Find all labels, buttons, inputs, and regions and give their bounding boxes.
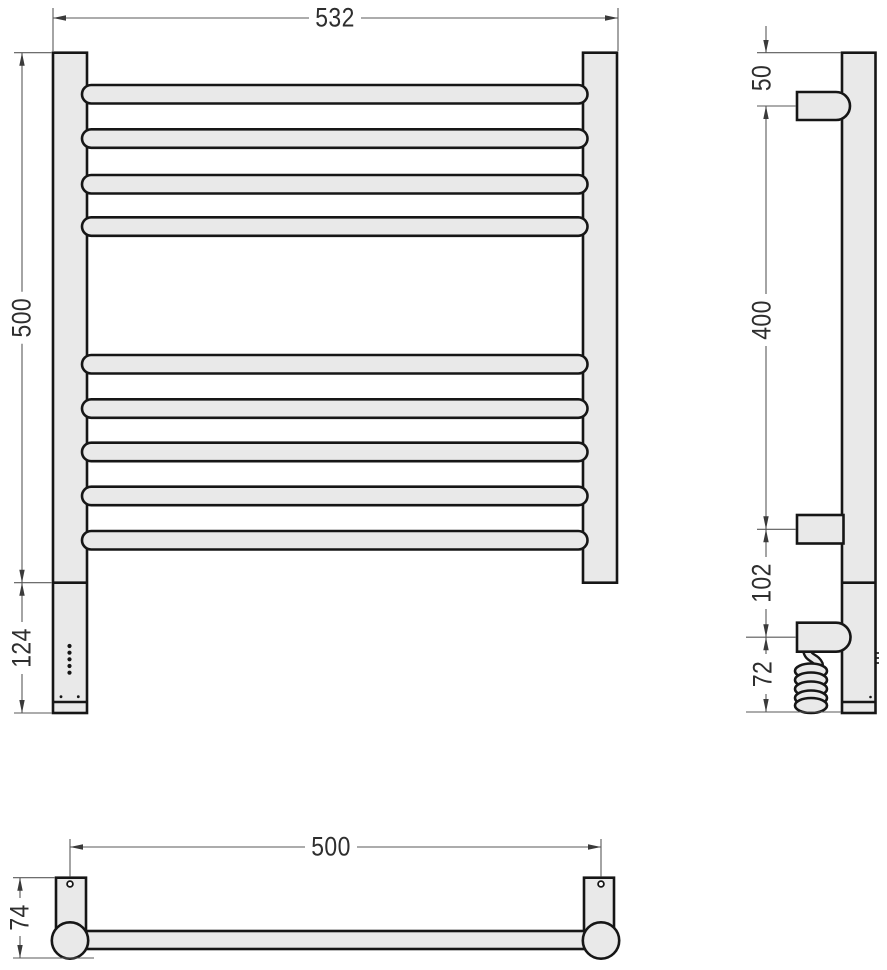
screw-dot — [60, 695, 63, 698]
front-view — [53, 53, 617, 713]
right-screw-hole — [598, 881, 604, 887]
led-dot — [67, 664, 71, 668]
arrowhead — [19, 583, 24, 596]
rung — [82, 487, 588, 506]
dimension-overall-width: 532 — [53, 3, 618, 51]
arrowhead — [53, 15, 66, 20]
cable-coil-loop — [795, 698, 827, 713]
arrowhead — [763, 699, 768, 712]
arrowhead — [763, 106, 768, 119]
dimension-label: 400 — [747, 300, 777, 340]
led-dot — [67, 651, 71, 655]
arrowhead — [763, 529, 768, 542]
dimension-mount-spacing: 500 — [70, 832, 601, 877]
dimension-bracket-to-element: 102 — [746, 529, 796, 637]
arrowhead — [17, 878, 22, 891]
dimension-label: 500 — [311, 832, 351, 862]
dimension-label: 124 — [7, 628, 37, 668]
arrowhead — [763, 40, 768, 53]
dimension-label: 72 — [748, 661, 778, 687]
arrowhead — [763, 516, 768, 529]
arrowhead — [588, 844, 601, 849]
rung — [82, 355, 588, 374]
upper-wall-bracket — [797, 92, 850, 120]
heating-element-housing — [797, 623, 851, 652]
arrowhead — [19, 570, 24, 583]
rung-tube — [70, 931, 601, 949]
lower-wall-bracket — [797, 515, 844, 544]
left-screw-hole — [67, 881, 73, 887]
left-post — [53, 53, 87, 713]
side-view — [795, 53, 879, 713]
arrowhead — [19, 700, 24, 713]
led-dot — [67, 657, 71, 661]
led-dot — [67, 644, 71, 648]
side-screw-dot — [869, 696, 872, 699]
left-post-section — [52, 922, 88, 958]
dimension-heater-height: 124 — [7, 583, 52, 713]
dimension-label: 74 — [5, 904, 35, 930]
screw-dot — [77, 695, 80, 698]
dimension-label: 50 — [747, 65, 777, 91]
dimension-rail-height: 500 — [7, 53, 52, 583]
towel-rail-drawing: 532 500 124 50 — [0, 0, 887, 970]
arrowhead — [763, 624, 768, 637]
led-dot — [67, 671, 71, 675]
arrowhead — [19, 53, 24, 66]
arrowhead — [763, 637, 768, 650]
power-cable — [795, 650, 827, 713]
dimension-label: 102 — [747, 563, 777, 603]
rung — [82, 217, 588, 236]
side-bar — [842, 53, 876, 713]
top-view — [52, 878, 619, 959]
right-post — [583, 53, 617, 583]
technical-drawing-page: 532 500 124 50 — [0, 0, 887, 970]
rung — [82, 531, 588, 550]
arrowhead — [605, 15, 618, 20]
arrowhead — [70, 844, 83, 849]
dimension-label: 500 — [7, 298, 37, 338]
dimension-label: 532 — [315, 3, 355, 33]
dimension-bracket-spacing: 400 — [747, 106, 796, 529]
rung — [82, 399, 588, 418]
rung — [82, 129, 588, 148]
right-post-section — [583, 922, 619, 958]
rungs — [82, 85, 588, 550]
rung — [82, 443, 588, 462]
arrowhead — [17, 945, 22, 958]
rung — [82, 85, 588, 104]
rung — [82, 175, 588, 194]
